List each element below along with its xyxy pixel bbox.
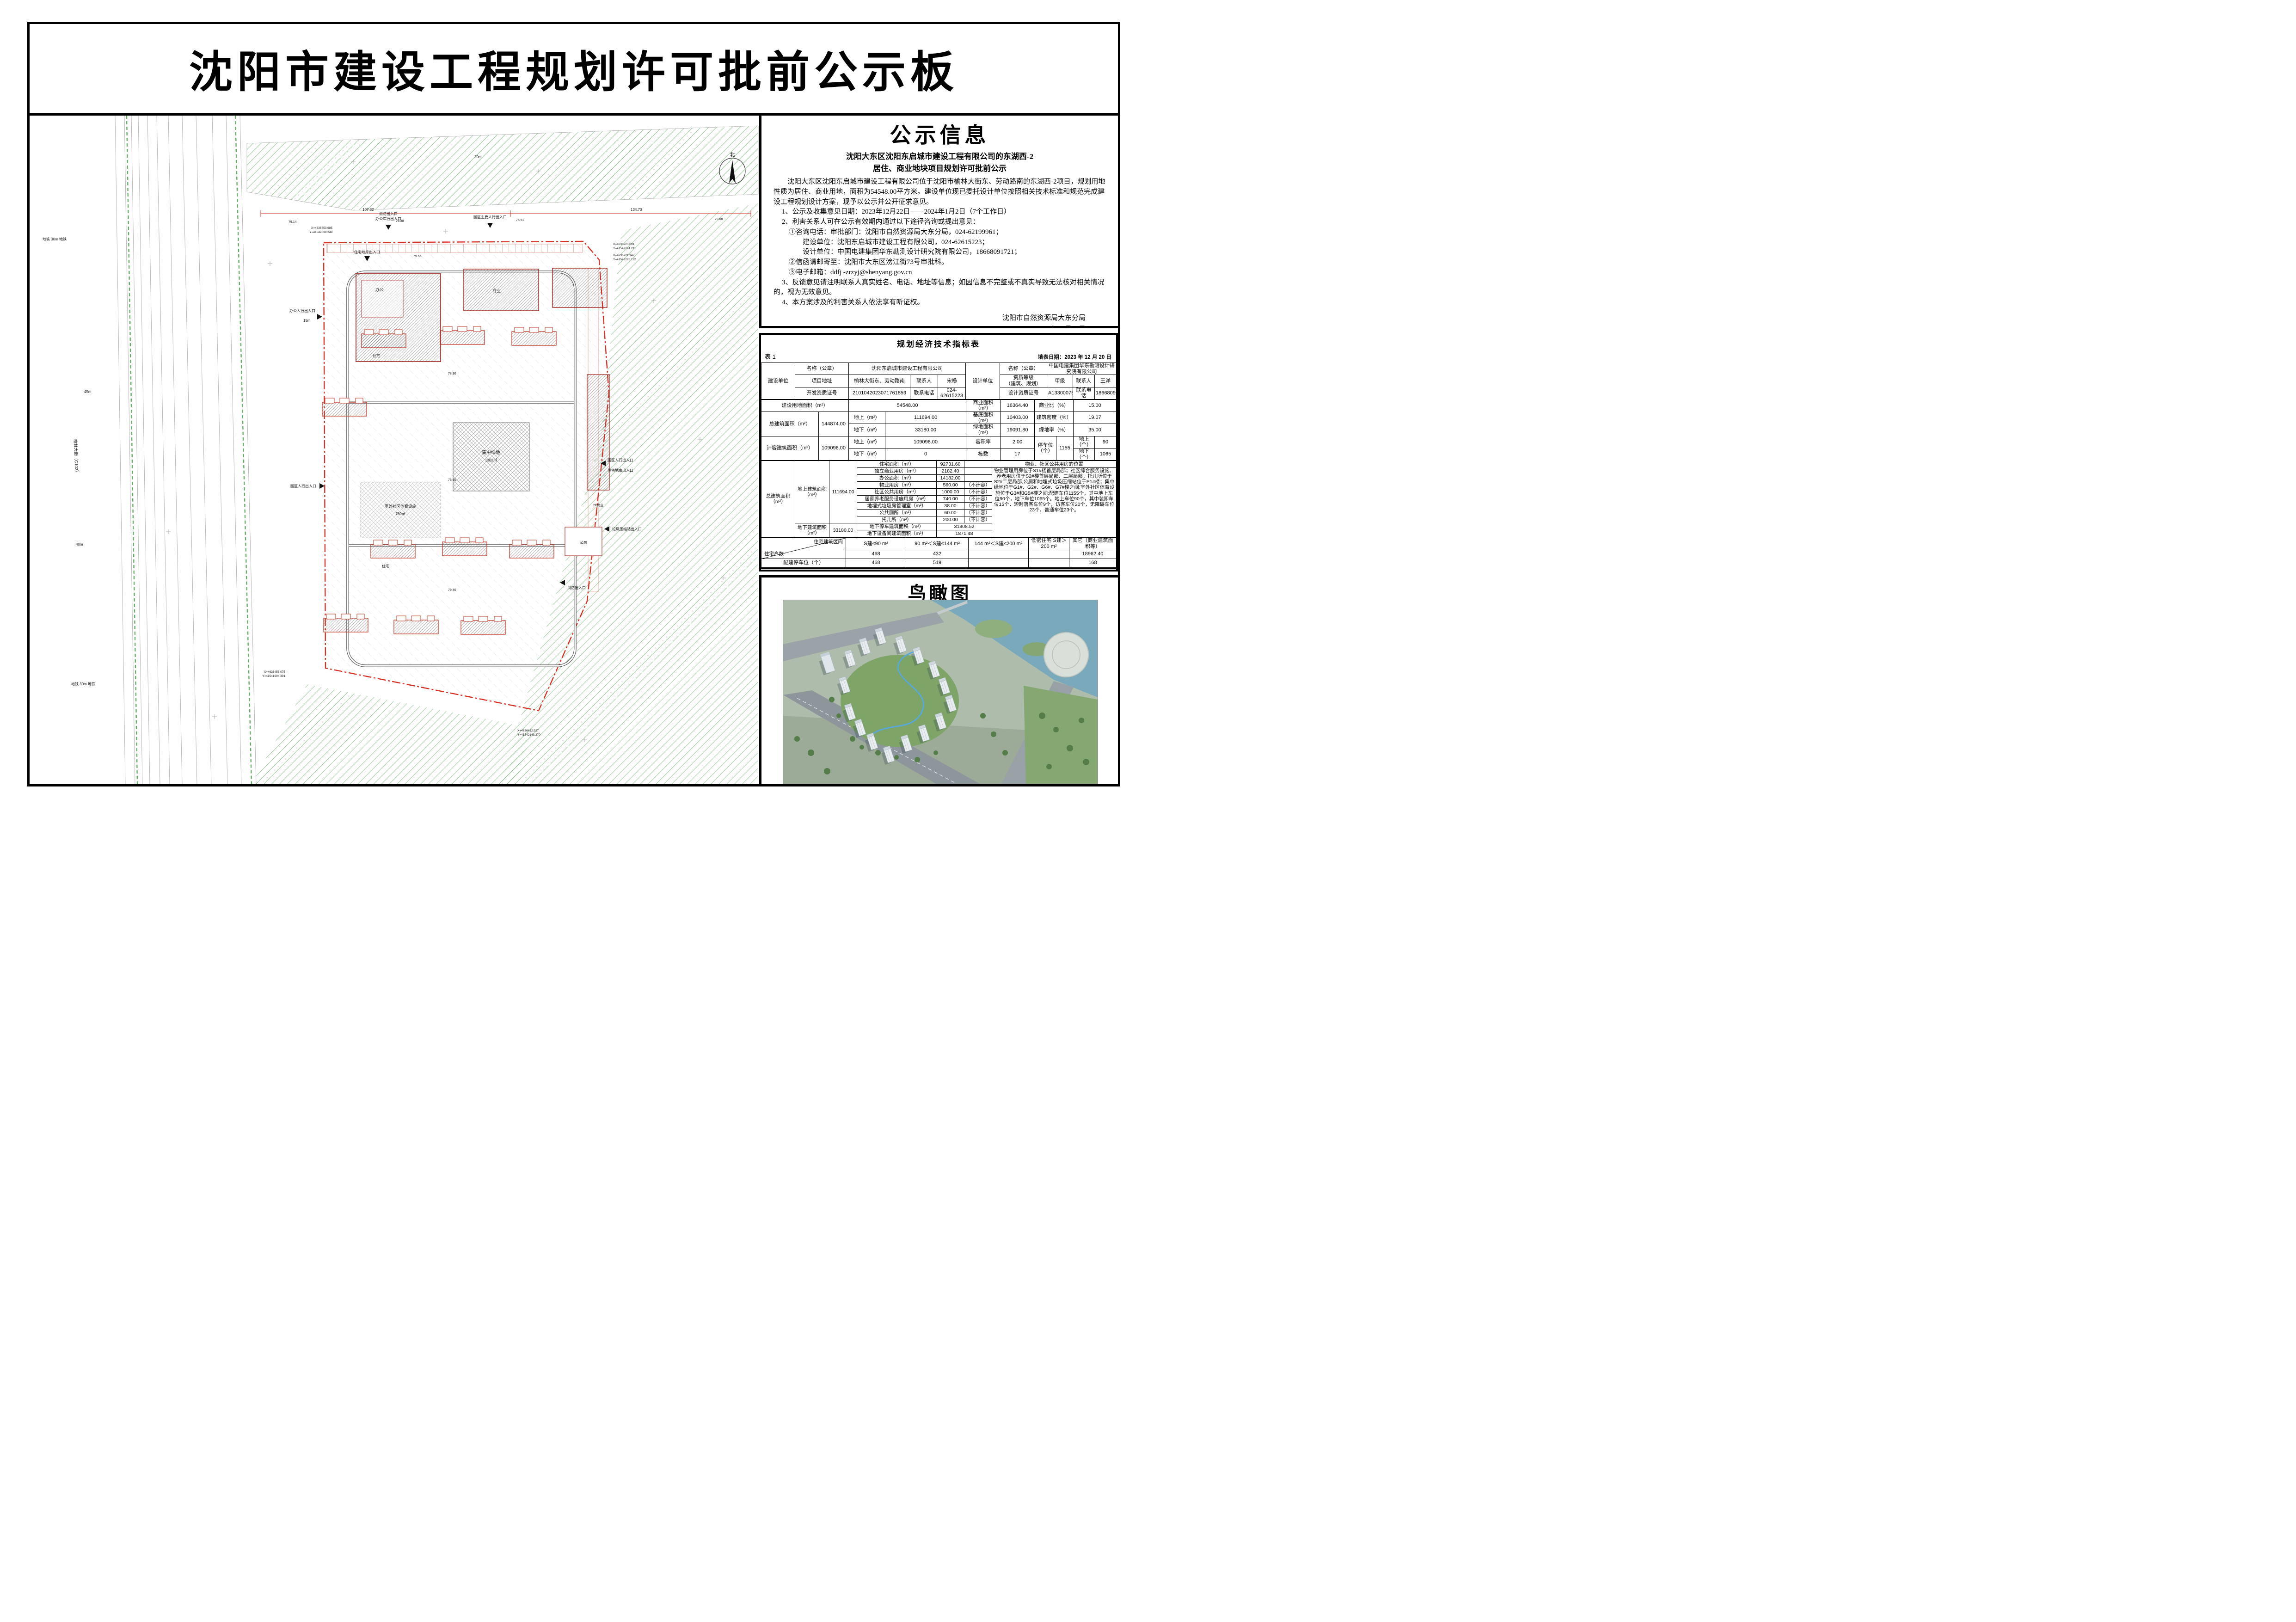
dim-label: 45m xyxy=(84,390,92,394)
toilet-building: 公厕 xyxy=(565,527,602,556)
households-2: 432 xyxy=(906,550,969,559)
builder-name: 沈阳东启城市建设工程有限公司 xyxy=(849,363,966,375)
notice-item-2-3: ③电子邮箱：ddfj -zrzyj@shenyang.gov.cn xyxy=(774,268,1106,278)
notice-item-2: 2、利害关系人可在公示有效期内通过以下途径咨询或提出意见： xyxy=(774,217,1106,227)
dim-label: 40m xyxy=(76,542,83,547)
dwelling-range-table: 住宅建筑区间 住宅户数 S建≤90 m² 90 m²＜S建≤144 m² 144… xyxy=(761,537,1117,567)
parking-below-label: 地下（个） xyxy=(1074,448,1095,460)
residential-label: 住宅 xyxy=(373,353,380,358)
notice-board-sheet: 沈阳市建设工程规划许可批前公示板 xyxy=(0,0,1148,811)
item-value: 2182.40 xyxy=(937,468,964,475)
cap-above-label: 地上（m²） xyxy=(849,436,885,448)
item-value: 1000.00 xyxy=(937,489,964,496)
entrance-label: 园区人行出入口 xyxy=(608,458,633,462)
parking-below-value: 1065 xyxy=(1095,448,1117,460)
blocks-value: 17 xyxy=(1001,448,1035,460)
sports-label: 室外社区体育设施 xyxy=(385,504,417,509)
ug-equip-value: 1871.48 xyxy=(937,530,992,537)
range-col-5: 其它（商业建筑面积等） xyxy=(1069,538,1117,550)
dev-cert-label: 开发资质证号 xyxy=(795,387,849,399)
elevation: 78.60 xyxy=(448,479,456,482)
table-title: 规划经济技术指标表 xyxy=(761,338,1116,349)
item-note: （不计容） xyxy=(964,510,992,516)
range-diagonal-cell: 住宅建筑区间 住宅户数 xyxy=(761,538,846,559)
biz-ratio-label: 商业比（%） xyxy=(1035,399,1074,412)
residential-building xyxy=(362,330,406,348)
item-label: 独立商业用房（m²） xyxy=(857,468,937,475)
notice-subtitle-line1: 沈阳大东区沈阳东启城市建设工程有限公司的东湖西-2 xyxy=(761,151,1118,163)
dim-label: 20m xyxy=(474,155,482,159)
title-banner: 沈阳市建设工程规划许可批前公示板 xyxy=(30,24,1118,113)
below-gfa-value: 33180.00 xyxy=(829,523,857,537)
park-east xyxy=(1024,686,1098,784)
biz-area-label: 商业面积（m²） xyxy=(966,399,1001,412)
parking-total: 1155 xyxy=(1056,436,1074,461)
notice-item-1: 1、公示及收集意见日期：2023年12月22日——2024年1月2日（7个工作日… xyxy=(774,207,1106,217)
phone-label: 联系电话 xyxy=(910,387,938,399)
alloc-parking-label: 配建停车位（个） xyxy=(761,559,846,567)
item-label: 住宅面积（m²） xyxy=(857,461,937,468)
item-label: 地埋式垃圾房管理室（m²） xyxy=(857,503,937,510)
dim-label: 134.70 xyxy=(631,208,642,212)
item-note: （不计容） xyxy=(964,482,992,489)
public-notice-panel: 公示信息 沈阳大东区沈阳东启城市建设工程有限公司的东湖西-2 居住、商业地块项目… xyxy=(759,116,1118,328)
item-note: （不计容） xyxy=(964,516,992,523)
birdview-panel: 鸟瞰图 xyxy=(759,575,1118,784)
contact-label: 联系人 xyxy=(1073,375,1095,387)
river-island xyxy=(975,620,1012,638)
plaza-circle xyxy=(1044,633,1088,677)
total-gfa-label: 总建筑面积（m²） xyxy=(761,412,819,436)
alloc-parking-4 xyxy=(1029,559,1069,567)
above-value: 111694.00 xyxy=(885,412,966,424)
below-value: 33180.00 xyxy=(885,424,966,436)
designer-name: 中国电建集团华东勘测设计研究院有限公司 xyxy=(1047,363,1117,375)
parking-label: 停车位（个） xyxy=(1035,436,1056,461)
entrance-label: 办公人行出入口 xyxy=(289,308,315,313)
item-label: 社区公共用房（m²） xyxy=(857,489,937,496)
households-label: 住宅户数 xyxy=(764,551,784,557)
range-label: 住宅建筑区间 xyxy=(814,539,843,545)
grade-value: 甲级 xyxy=(1047,375,1073,387)
land-area-label: 建设用地面积（m²） xyxy=(761,399,849,412)
item-note xyxy=(964,468,992,475)
green-ratio-value: 35.00 xyxy=(1074,424,1117,436)
below-gfa-label: 地下建筑面积（m²） xyxy=(795,523,829,537)
note-title: 物业、社区公共用房的位置 xyxy=(992,461,1117,468)
far-value: 2.00 xyxy=(1001,436,1035,448)
toilet-label: 公厕 xyxy=(580,541,588,545)
green-ratio-label: 绿地率（%） xyxy=(1035,424,1074,436)
office-label: 办公 xyxy=(375,287,384,292)
alloc-parking-5: 168 xyxy=(1069,559,1117,567)
coord: X=4636753.985 xyxy=(311,227,332,230)
indicator-table-panel: 表 1 规划经济技术指标表 填表日期：2023 年 12 月 20 日 建设单位… xyxy=(759,333,1118,571)
notice-item-2-1a: 建设单位：沈阳东启城市建设工程有限公司，024-62615223； xyxy=(774,238,1106,248)
central-green-label: 集中绿地 xyxy=(482,449,500,455)
coord: Y=41541994.391 xyxy=(262,675,285,678)
residential-building xyxy=(322,398,367,416)
commercial-building-s2: 商业 xyxy=(464,269,539,311)
elevation: 79.55 xyxy=(413,255,422,258)
builder-label: 建设单位 xyxy=(761,363,795,399)
breakdown-total-label: 总建筑面积（m²） xyxy=(761,461,795,537)
sports-area-label: 780㎡ xyxy=(395,512,405,516)
item-value: 200.00 xyxy=(937,516,964,523)
item-label: 公共厕所（m²） xyxy=(857,510,937,516)
below-label: 地下（m²） xyxy=(849,424,885,436)
design-cert-value: A133000751 xyxy=(1047,387,1073,399)
households-5: 18962.40 xyxy=(1069,550,1117,559)
birdview-rendering xyxy=(783,600,1098,784)
design-cert-label: 设计资质证号 xyxy=(1000,387,1047,399)
ug-parking-value: 31308.52 xyxy=(937,523,992,530)
builder-contact: 宋畅 xyxy=(938,375,966,387)
residential-building xyxy=(440,326,485,344)
item-label: 办公面积（m²） xyxy=(857,475,937,482)
green-area-value: 19091.80 xyxy=(1001,424,1035,436)
commercial-2f-label: 2F商业 xyxy=(593,503,603,507)
alloc-parking-3 xyxy=(969,559,1029,567)
dim-label: 107.32 xyxy=(362,208,374,212)
residential-label: 住宅 xyxy=(382,564,389,568)
entrance-label: 住宅地库出入口 xyxy=(608,468,633,473)
above-gfa-label: 地上建筑面积（m²） xyxy=(795,461,829,523)
cap-above-value: 109096.00 xyxy=(885,436,966,448)
green-area-label: 绿地面积（m²） xyxy=(966,424,1001,436)
coord: Y=41542225.112 xyxy=(613,258,636,261)
total-gfa-value: 144874.00 xyxy=(819,412,849,436)
dim-label: 15m xyxy=(303,319,311,323)
entrance-label: 办公车行出入口 xyxy=(375,216,401,221)
residential-building xyxy=(371,540,415,558)
elevation: 79.00 xyxy=(715,218,723,221)
metro-label-bottom: 地铁 30m 地铁 xyxy=(71,682,95,686)
coord: X=4636412.927 xyxy=(517,729,539,732)
item-value: 740.00 xyxy=(937,496,964,503)
table-number: 表 1 xyxy=(765,352,776,361)
land-area-value: 54548.00 xyxy=(849,399,966,412)
north-label: 北 xyxy=(730,152,735,158)
parking-above-label: 地上（个） xyxy=(1074,436,1095,448)
coord: X=4636721.947 xyxy=(613,254,634,257)
item-label: 物业用房（m²） xyxy=(857,482,937,489)
builder-phone: 024-62615223 xyxy=(938,387,966,399)
unit-info-table: 建设单位 名称（公章） 沈阳东启城市建设工程有限公司 设计单位 名称（公章） 中… xyxy=(761,362,1117,399)
entrance-label: 消防出入口 xyxy=(567,585,586,590)
notice-title: 公示信息 xyxy=(761,118,1118,149)
dev-cert-value: 2101042023071761859 xyxy=(849,387,910,399)
coord: Y=41542039.249 xyxy=(309,231,332,234)
gfa-breakdown-table: 总建筑面积（m²） 地上建筑面积（m²） 111694.00 住宅面积（m²） … xyxy=(761,461,1117,537)
item-value: 14182.00 xyxy=(937,475,964,482)
range-col-3: 144 m²＜S建≤200 m² xyxy=(969,538,1029,550)
notice-intro: 沈阳大东区沈阳东启城市建设工程有限公司位于沈阳市榆林大街东、劳动路南的东湖西-2… xyxy=(774,177,1106,207)
item-value: 560.00 xyxy=(937,482,964,489)
designer-phone: 18668091721 xyxy=(1095,387,1117,399)
community-building xyxy=(553,268,607,307)
blocks-label: 栋数 xyxy=(966,448,1001,460)
residential-building xyxy=(324,614,368,632)
table-remark: 备注：我司承诺建筑面积计算方式及各项指标计算方法符合国家现行标准规定及标准《建筑… xyxy=(761,568,1116,571)
residential-building xyxy=(394,616,438,634)
residential-building xyxy=(510,540,554,558)
notice-item-2-2: ②信函请邮寄至：沈阳市大东区滂江街73号审批科。 xyxy=(774,258,1106,268)
phone-label: 联系电话 xyxy=(1073,387,1095,399)
notice-subtitle-line2: 居住、商业地块项目规划许可批前公示 xyxy=(761,163,1118,175)
capacity-gfa-label: 计容建筑面积（m²） xyxy=(761,436,819,461)
range-col-4: 低密住宅 S建＞200 m² xyxy=(1029,538,1069,550)
notice-body: 沈阳大东区沈阳东启城市建设工程有限公司位于沈阳市榆林大街东、劳动路南的东湖西-2… xyxy=(761,174,1118,308)
capacity-gfa-value: 109096.00 xyxy=(819,436,849,461)
residential-building xyxy=(512,327,556,345)
coord: Y=41542143.370 xyxy=(517,733,540,737)
elevation: 79.14 xyxy=(289,221,297,224)
item-note xyxy=(964,461,992,468)
name-label: 名称（公章） xyxy=(1000,363,1047,375)
biz-area-value: 16364.40 xyxy=(1001,399,1035,412)
entrance-label: 园区主要人行出入口 xyxy=(473,215,507,219)
notice-item-4: 4、本方案涉及的利害关系人依法享有听证权。 xyxy=(774,298,1106,308)
notice-item-2-1b: 设计单位：中国电建集团华东勘测设计研究院有限公司，18668091721； xyxy=(774,247,1106,258)
item-value: 60.00 xyxy=(937,510,964,516)
item-label: 居家养老服务设施用房（m²） xyxy=(857,496,937,503)
cap-below-label: 地下（m²） xyxy=(849,448,885,460)
metro-label-top: 地铁 30m 地铁 xyxy=(43,237,67,241)
entrance-label: 园区人行出入口 xyxy=(290,484,316,488)
far-label: 容积率 xyxy=(966,436,1001,448)
households-3 xyxy=(969,550,1029,559)
site-plan-drawing: 办公 商业 2F商业 公厕 住宅 住宅 集中绿地 1302㎡ xyxy=(30,116,759,784)
commercial-label: 商业 xyxy=(492,288,501,293)
notice-item-3: 3、反馈意见请注明联系人真实姓名、电话、地址等信息；如因信息不完整或不真实导致无… xyxy=(774,278,1106,298)
central-green-area-label: 1302㎡ xyxy=(485,458,497,462)
item-value: 92731.60 xyxy=(937,461,964,468)
entrance-label: 消防出入口 xyxy=(379,211,398,216)
site-plan-panel: 办公 商业 2F商业 公厕 住宅 住宅 集中绿地 1302㎡ xyxy=(30,116,759,784)
item-note xyxy=(964,475,992,482)
notice-sign-date: 2023年12月22日 xyxy=(761,324,1086,328)
address-value: 榆林大街东、劳动路南 xyxy=(849,375,910,387)
designer-contact: 王洋 xyxy=(1095,375,1117,387)
item-note: （不计容） xyxy=(964,496,992,503)
sheet-frame: 沈阳市建设工程规划许可批前公示板 xyxy=(27,22,1120,786)
main-indicator-table: 建设用地面积（m²） 54548.00 商业面积（m²） 16364.40 商业… xyxy=(761,399,1117,461)
outdoor-sports-area: 室外社区体育设施 780㎡ xyxy=(361,483,441,537)
above-gfa-value: 111694.00 xyxy=(829,461,857,523)
biz-ratio-value: 15.00 xyxy=(1074,399,1117,412)
address-label: 项目地址 xyxy=(795,375,849,387)
cap-below-value: 0 xyxy=(885,448,966,460)
footprint-value: 10403.00 xyxy=(1001,412,1035,424)
item-note: （不计容） xyxy=(964,489,992,496)
elevation: 79.40 xyxy=(448,589,456,592)
board-title: 沈阳市建设工程规划许可批前公示板 xyxy=(189,37,958,100)
elevation: 78.90 xyxy=(448,372,456,375)
birdview-image xyxy=(783,600,1098,784)
table-fill-date: 填表日期：2023 年 12 月 20 日 xyxy=(1038,353,1111,361)
item-label: 托儿所（m²） xyxy=(857,516,937,523)
designer-label: 设计单位 xyxy=(966,363,1000,399)
grade-label: 资质等级（建筑、规划） xyxy=(1000,375,1047,387)
name-label: 名称（公章） xyxy=(795,363,849,375)
residential-building xyxy=(461,616,505,634)
contact-label: 联系人 xyxy=(910,375,938,387)
notice-sign-agency: 沈阳市自然资源局大东分局 xyxy=(761,313,1086,324)
elevation: 75.51 xyxy=(516,219,524,222)
coord: X=4636458.075 xyxy=(264,670,285,674)
alloc-parking-1: 468 xyxy=(846,559,906,567)
note-body: 物业管理用房位于S1#楼首层局部；社区综合服务设施、养老用房位于S2#楼首层局部… xyxy=(992,468,1117,537)
households-1: 468 xyxy=(846,550,906,559)
residential-building xyxy=(442,538,487,556)
ug-equip-label: 地下设备间建筑面积（m²） xyxy=(857,530,937,537)
notice-item-2-1: ①咨询电话：审批部门：沈阳市自然资源局大东分局，024-62199961； xyxy=(774,227,1106,238)
entrance-label: 垃圾压缩站出入口 xyxy=(612,527,642,531)
alloc-parking-2: 519 xyxy=(906,559,969,567)
parking-above-value: 90 xyxy=(1095,436,1117,448)
item-note: （不计容） xyxy=(964,503,992,510)
coord: Y=41542224.211 xyxy=(613,247,636,250)
above-label: 地上（m²） xyxy=(849,412,885,424)
range-col-1: S建≤90 m² xyxy=(846,538,906,550)
footprint-label: 基底面积（m²） xyxy=(966,412,1001,424)
households-4 xyxy=(1029,550,1069,559)
item-value: 38.00 xyxy=(937,503,964,510)
density-value: 19.07 xyxy=(1074,412,1117,424)
office-building: 办公 xyxy=(356,274,441,362)
commercial-strip-2f: 2F商业 xyxy=(587,375,609,507)
ug-parking-label: 地下停车建筑面积（m²） xyxy=(857,523,937,530)
entrance-label: 住宅地库出入口 xyxy=(354,250,380,254)
range-col-2: 90 m²＜S建≤144 m² xyxy=(906,538,969,550)
coord: X=4636723.091 xyxy=(613,243,634,246)
central-green-area: 集中绿地 1302㎡ xyxy=(453,423,529,491)
density-label: 建筑密度（%） xyxy=(1035,412,1074,424)
